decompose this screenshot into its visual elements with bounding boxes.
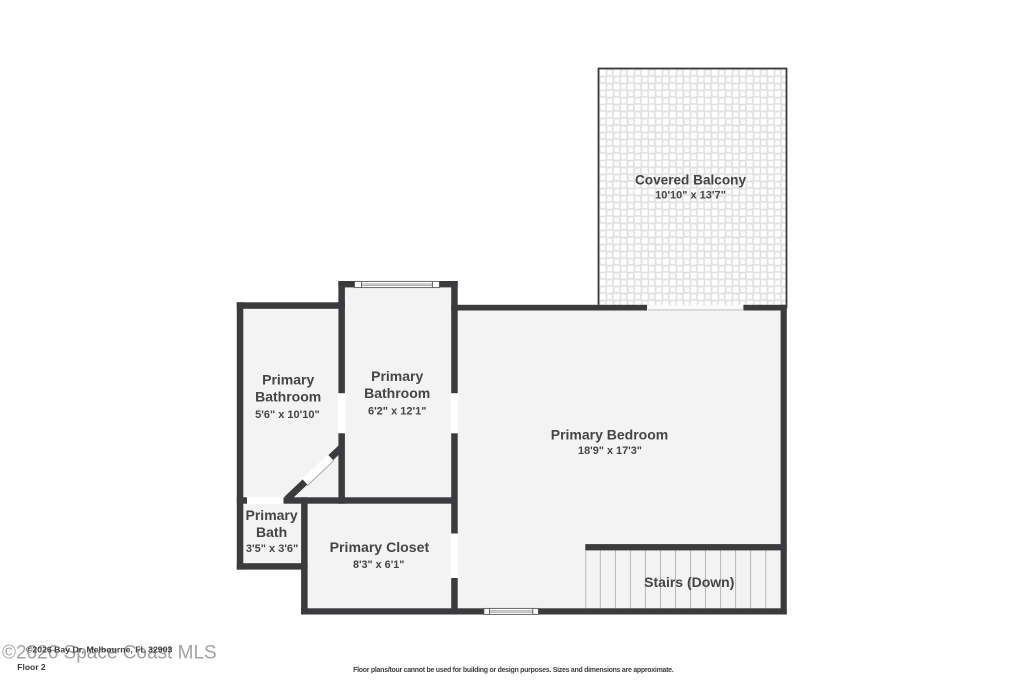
svg-text:Primary: Primary [246, 507, 298, 523]
svg-text:Floor 2: Floor 2 [17, 662, 46, 672]
svg-text:6'2" x 12'1": 6'2" x 12'1" [368, 406, 426, 418]
svg-text:Primary Closet: Primary Closet [330, 539, 430, 555]
svg-text:10'10" x 13'7": 10'10" x 13'7" [655, 189, 726, 201]
svg-text:Covered Balcony: Covered Balcony [635, 173, 746, 188]
svg-text:©2026 Bay Dr, Melbourne, FL 32: ©2026 Bay Dr, Melbourne, FL 32903 [26, 645, 172, 655]
svg-text:Primary Bedroom: Primary Bedroom [551, 427, 668, 443]
svg-text:3'5" x 3'6": 3'5" x 3'6" [246, 543, 298, 555]
svg-text:Bath: Bath [256, 524, 287, 540]
svg-text:5'6" x 10'10": 5'6" x 10'10" [255, 409, 320, 421]
svg-text:18'9" x 17'3": 18'9" x 17'3" [578, 445, 642, 457]
svg-text:Primary: Primary [371, 368, 423, 384]
svg-text:Stairs (Down): Stairs (Down) [644, 574, 734, 590]
svg-text:Floor plans/tour cannot be use: Floor plans/tour cannot be used for buil… [353, 667, 674, 674]
svg-text:Bathroom: Bathroom [255, 389, 321, 405]
svg-text:Bathroom: Bathroom [364, 385, 430, 401]
svg-text:Primary: Primary [262, 372, 314, 388]
svg-text:8'3" x 6'1": 8'3" x 6'1" [353, 559, 404, 571]
